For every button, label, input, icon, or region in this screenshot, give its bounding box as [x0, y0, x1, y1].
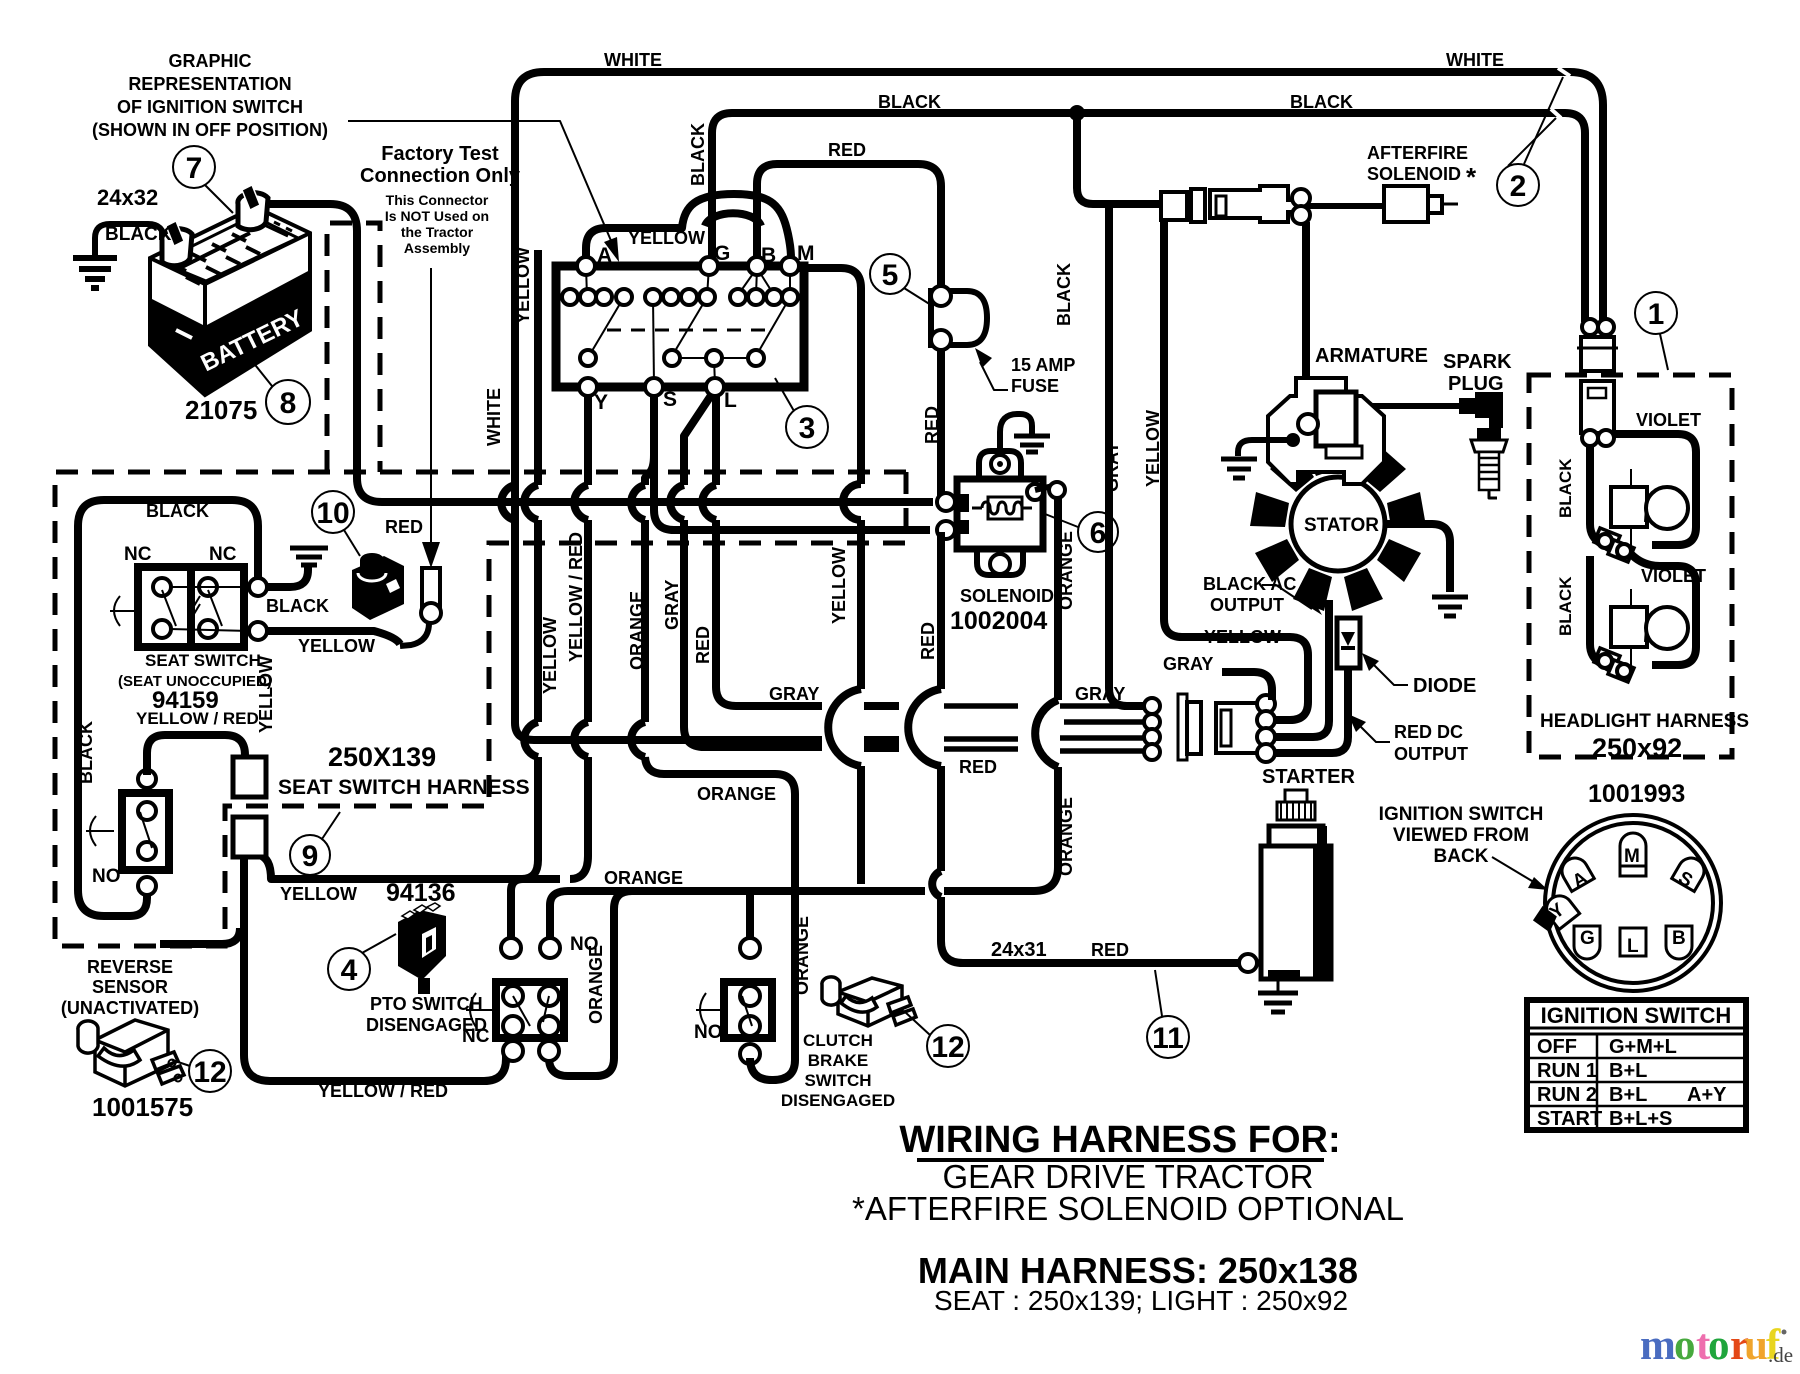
svg-text:L: L	[1627, 936, 1639, 957]
svg-text:SOLENOID: SOLENOID	[960, 586, 1054, 606]
svg-text:BLACK: BLACK	[1556, 458, 1575, 518]
svg-text:DISENGAGED: DISENGAGED	[781, 1091, 895, 1110]
svg-text:NC: NC	[124, 544, 152, 565]
svg-text:BLACK: BLACK	[878, 92, 941, 112]
svg-text:GRAY: GRAY	[1102, 442, 1122, 492]
svg-text:YELLOW / RED: YELLOW / RED	[318, 1081, 448, 1101]
svg-text:BRAKE: BRAKE	[808, 1051, 868, 1070]
svg-text:.de: .de	[1768, 1343, 1793, 1367]
svg-text:o: o	[1708, 1322, 1730, 1369]
svg-text:G: G	[714, 242, 730, 265]
svg-text:This Connector: This Connector	[386, 192, 489, 208]
svg-text:1001575: 1001575	[92, 1092, 193, 1122]
svg-text:11: 11	[1152, 1022, 1184, 1055]
svg-text:B: B	[1672, 928, 1686, 949]
svg-text:ORANGE: ORANGE	[1056, 797, 1076, 876]
svg-text:ORANGE: ORANGE	[1056, 531, 1076, 610]
svg-text:STARTER: STARTER	[1262, 766, 1356, 788]
svg-text:94136: 94136	[386, 879, 456, 907]
svg-text:ORANGE: ORANGE	[627, 591, 647, 670]
svg-text:ORANGE: ORANGE	[697, 784, 776, 804]
svg-text:(UNACTIVATED): (UNACTIVATED)	[61, 998, 199, 1018]
svg-text:BLACK: BLACK	[688, 123, 708, 186]
svg-text:9: 9	[302, 840, 319, 873]
svg-text:NC: NC	[209, 544, 237, 565]
svg-text:NO: NO	[694, 1022, 723, 1043]
svg-text:12: 12	[931, 1031, 964, 1064]
svg-text:YELLOW: YELLOW	[829, 547, 849, 624]
svg-text:NO: NO	[570, 934, 599, 955]
svg-text:250x92: 250x92	[1592, 733, 1682, 763]
svg-text:5: 5	[882, 259, 899, 292]
svg-text:250X139: 250X139	[328, 742, 436, 772]
svg-text:B+L: B+L	[1609, 1060, 1647, 1082]
svg-text:START: START	[1537, 1108, 1602, 1130]
svg-text:1001993: 1001993	[1588, 780, 1685, 808]
svg-text:GRAY: GRAY	[662, 580, 682, 630]
svg-text:B+L+S: B+L+S	[1609, 1108, 1672, 1130]
svg-text:BLACK: BLACK	[105, 224, 172, 245]
svg-text:Is NOT Used on: Is NOT Used on	[385, 208, 489, 224]
svg-text:STATOR: STATOR	[1304, 515, 1379, 536]
svg-text:2: 2	[1510, 170, 1527, 203]
svg-text:RED: RED	[918, 622, 938, 660]
svg-text:WHITE: WHITE	[1446, 50, 1504, 70]
svg-text:FUSE: FUSE	[1011, 376, 1059, 396]
svg-text:m: m	[1640, 1322, 1676, 1369]
svg-text:u: u	[1744, 1322, 1768, 1369]
svg-text:24x32: 24x32	[97, 185, 158, 210]
svg-text:12: 12	[193, 1056, 226, 1089]
svg-text:B: B	[761, 244, 776, 267]
svg-text:ORANGE: ORANGE	[586, 945, 606, 1024]
svg-text:REPRESENTATION: REPRESENTATION	[128, 74, 291, 94]
svg-text:CLUTCH: CLUTCH	[803, 1031, 873, 1050]
svg-text:YELLOW / RED: YELLOW / RED	[566, 532, 586, 662]
svg-text:OF IGNITION SWITCH: OF IGNITION SWITCH	[117, 97, 303, 117]
svg-text:BLACK AC: BLACK AC	[1203, 574, 1296, 594]
svg-text:1: 1	[1648, 298, 1665, 331]
svg-text:RED: RED	[828, 140, 866, 160]
svg-text:RED DC: RED DC	[1394, 722, 1463, 742]
svg-text:ORANGE: ORANGE	[792, 916, 812, 995]
svg-text:4: 4	[341, 954, 358, 987]
svg-text:SOLENOID: SOLENOID	[1367, 164, 1461, 184]
svg-text:B+L: B+L	[1609, 1084, 1647, 1106]
svg-text:15 AMP: 15 AMP	[1011, 355, 1075, 375]
svg-text:IGNITION SWITCH: IGNITION SWITCH	[1379, 804, 1544, 825]
svg-text:BLACK: BLACK	[146, 501, 209, 521]
svg-text:GRAY: GRAY	[1163, 654, 1213, 674]
svg-text:NO: NO	[92, 866, 121, 887]
svg-text:VIEWED FROM: VIEWED FROM	[1393, 825, 1529, 846]
svg-text:YELLOW: YELLOW	[298, 636, 375, 656]
svg-text:RUN 2: RUN 2	[1537, 1084, 1597, 1106]
svg-text:24x31: 24x31	[991, 939, 1047, 961]
svg-text:YELLOW: YELLOW	[628, 228, 705, 248]
svg-text:7: 7	[186, 152, 203, 185]
svg-text:YELLOW: YELLOW	[540, 617, 560, 694]
svg-text:HEADLIGHT HARNESS: HEADLIGHT HARNESS	[1540, 711, 1749, 732]
svg-text:1002004: 1002004	[950, 607, 1047, 635]
svg-text:RED: RED	[959, 757, 997, 777]
svg-text:BLACK: BLACK	[266, 596, 329, 616]
svg-text:RED: RED	[693, 626, 713, 664]
svg-text:VIOLET: VIOLET	[1636, 410, 1701, 430]
svg-text:L: L	[724, 389, 737, 412]
svg-text:AFTERFIRE: AFTERFIRE	[1367, 143, 1468, 163]
svg-text:BLACK: BLACK	[1556, 576, 1575, 636]
svg-text:Y: Y	[594, 391, 608, 414]
svg-text:SPARK: SPARK	[1443, 351, 1512, 373]
svg-text:SEAT : 250x139; LIGHT : 250: SEAT : 250x139; LIGHT : 250x92	[934, 1285, 1348, 1316]
svg-text:RED: RED	[922, 406, 942, 444]
svg-text:Factory Test: Factory Test	[381, 143, 499, 165]
svg-text:NC: NC	[462, 1026, 490, 1047]
svg-text:the Tractor: the Tractor	[401, 224, 474, 240]
svg-text:YELLOW: YELLOW	[256, 656, 276, 733]
svg-text:SWITCH: SWITCH	[804, 1071, 871, 1090]
svg-text:YELLOW: YELLOW	[1143, 410, 1163, 487]
svg-text:*AFTERFIRE SOLENOID OPTIONAL: *AFTERFIRE SOLENOID OPTIONAL	[852, 1190, 1404, 1227]
svg-text:DIODE: DIODE	[1413, 675, 1476, 697]
svg-text:RED: RED	[1091, 940, 1129, 960]
svg-text:OFF: OFF	[1537, 1036, 1577, 1058]
svg-text:RED: RED	[385, 517, 423, 537]
svg-text:RUN 1: RUN 1	[1537, 1060, 1597, 1082]
svg-text:M: M	[797, 242, 815, 265]
svg-text:6: 6	[1090, 517, 1107, 550]
svg-text:A+Y: A+Y	[1687, 1084, 1727, 1106]
svg-text:SEAT SWITCH: SEAT SWITCH	[145, 651, 261, 670]
svg-text:(SHOWN IN OFF POSITION): (SHOWN IN OFF POSITION)	[92, 120, 328, 140]
svg-text:M: M	[1624, 846, 1640, 867]
svg-text:WHITE: WHITE	[484, 388, 504, 446]
svg-text:PTO SWITCH: PTO SWITCH	[370, 994, 483, 1014]
svg-text:3: 3	[799, 412, 816, 445]
svg-text:OUTPUT: OUTPUT	[1210, 595, 1284, 615]
svg-text:PLUG: PLUG	[1448, 373, 1504, 395]
svg-text:YELLOW: YELLOW	[1204, 627, 1281, 647]
svg-text:10: 10	[316, 497, 349, 530]
svg-text:ARMATURE: ARMATURE	[1315, 345, 1428, 367]
svg-text:YELLOW: YELLOW	[513, 247, 533, 324]
svg-text:Connection Only: Connection Only	[360, 165, 521, 187]
svg-text:WIRING HARNESS FOR:: WIRING HARNESS FOR:	[899, 1119, 1340, 1161]
svg-text:G+M+L: G+M+L	[1609, 1036, 1677, 1058]
svg-text:S: S	[663, 388, 677, 411]
svg-text:REVERSE: REVERSE	[87, 957, 173, 977]
svg-text:GRAY: GRAY	[769, 684, 819, 704]
svg-text:BLACK: BLACK	[1054, 263, 1074, 326]
svg-text:ORANGE: ORANGE	[604, 868, 683, 888]
svg-text:YELLOW: YELLOW	[280, 884, 357, 904]
svg-text:BLACK: BLACK	[76, 721, 96, 784]
svg-text:Assembly: Assembly	[404, 240, 470, 256]
svg-text:8: 8	[280, 387, 297, 420]
svg-text:YELLOW / RED: YELLOW / RED	[136, 709, 259, 728]
svg-text:SENSOR: SENSOR	[92, 977, 168, 997]
svg-text:G: G	[1580, 928, 1595, 949]
svg-text:*: *	[1466, 162, 1477, 192]
svg-text:WHITE: WHITE	[604, 50, 662, 70]
svg-text:GRAPHIC: GRAPHIC	[168, 51, 251, 71]
svg-text:OUTPUT: OUTPUT	[1394, 744, 1468, 764]
svg-text:BACK: BACK	[1434, 846, 1489, 867]
svg-text:21075: 21075	[185, 395, 257, 425]
svg-text:SEAT SWITCH HARNESS: SEAT SWITCH HARNESS	[278, 776, 530, 799]
svg-text:IGNITION SWITCH: IGNITION SWITCH	[1541, 1003, 1732, 1028]
svg-text:o: o	[1674, 1322, 1696, 1369]
svg-text:BLACK: BLACK	[1290, 92, 1353, 112]
